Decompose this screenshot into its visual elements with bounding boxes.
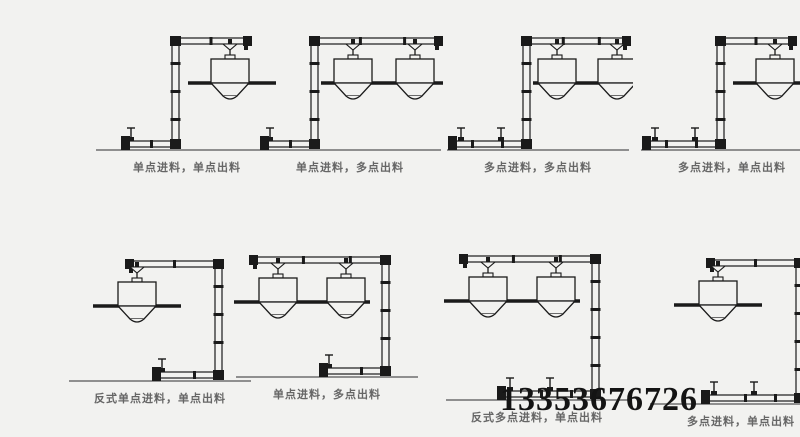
figure-label: 单点进料，单点出料	[92, 159, 282, 175]
elevator-figure-2: 单点进料，多点出料	[255, 26, 445, 175]
phone-number: 13353676726	[500, 381, 698, 419]
figure-label: 单点进料，多点出料	[255, 159, 445, 175]
elevator-figure-4: 多点进料，单点出料	[637, 26, 800, 175]
figure-label: 单点进料，多点出料	[232, 386, 422, 402]
elevator-diagram-z-multi-single	[637, 26, 800, 156]
elevator-diagram-z-single-multi	[255, 26, 445, 156]
elevator-diagram-reverse-single-single	[65, 249, 255, 387]
elevator-diagram-reverse-single-multi	[232, 245, 422, 383]
elevator-diagram-z-multi-multi	[443, 26, 633, 156]
elevator-figure-1: 单点进料，单点出料	[92, 26, 282, 175]
elevator-figure-6: 单点进料，多点出料	[232, 245, 422, 402]
elevator-figure-3: 多点进料，多点出料	[443, 26, 633, 175]
figure-label: 多点进料，单点出料	[637, 159, 800, 175]
figure-label: 反式单点进料，单点出料	[65, 390, 255, 406]
diagram-sheet: 单点进料，单点出料 单点进料，多点出料 多点进料，多点出料 多点进料，单点出料 …	[0, 0, 800, 437]
figure-label: 多点进料，多点出料	[443, 159, 633, 175]
elevator-diagram-z-single-single	[92, 26, 282, 156]
elevator-figure-5: 反式单点进料，单点出料	[65, 249, 255, 406]
